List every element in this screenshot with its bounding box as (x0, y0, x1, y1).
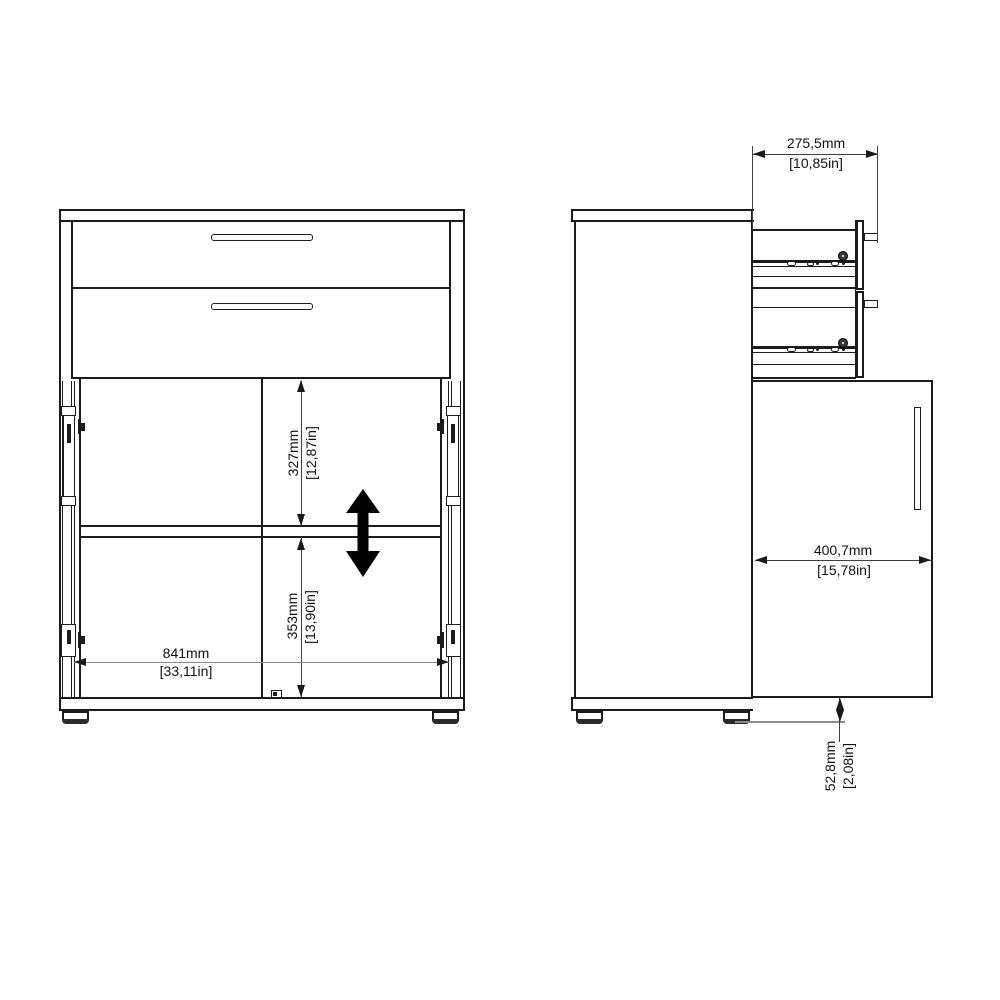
body-back-edge (574, 220, 576, 698)
drawer2-slide-rail-bottom (753, 352, 856, 353)
bottom-panel-bottom-edge (59, 709, 465, 711)
arrowhead-up (297, 380, 305, 392)
drawer2-handle-peg (864, 300, 878, 308)
dim-label-275-mm: 275,5mm (761, 135, 871, 151)
top-panel-bottom-edge (571, 220, 754, 222)
dim-label-400-in: [15,78in] (789, 562, 899, 578)
dim-label-841-in: [33,11in] (131, 663, 241, 679)
right-outer-edge (463, 209, 465, 711)
drawer1-handle-peg (864, 233, 878, 241)
slide-rivet (816, 348, 819, 351)
drawer1-box-bottom (753, 276, 856, 277)
arrowhead-up (836, 698, 844, 710)
door-handle-slot (914, 407, 921, 510)
hinge-arm (67, 424, 71, 443)
hinge-hook (441, 632, 444, 648)
dim-label-841-mm: 841mm (131, 645, 241, 661)
slide-roller (807, 262, 814, 266)
hinge-arm (67, 630, 71, 644)
drawer2-box-bottom (753, 364, 856, 365)
shelf-top-edge (80, 525, 441, 527)
slide-screw (838, 251, 848, 261)
slide-roller (787, 261, 796, 266)
drawer-divider-line (72, 287, 450, 289)
dim-label-327-in: [12,87in] (303, 398, 319, 508)
drawer1-slide-rail-bottom (753, 266, 856, 267)
dim-label-353-in: [13,90in] (302, 562, 318, 672)
arrowhead-left (74, 658, 86, 666)
side-back-foot (576, 711, 603, 724)
slide-roller (807, 348, 814, 352)
dim-label-52-mm: 52,8mm (822, 711, 838, 821)
hinge-hook-nub (81, 636, 85, 644)
hinge-arm (451, 424, 455, 443)
bottom-panel-top-edge (571, 697, 753, 699)
dim-label-275-in: [10,85in] (761, 155, 871, 171)
slide-rivet (816, 262, 819, 265)
top-panel-bottom-edge (59, 220, 465, 222)
drawer-divider-line (753, 287, 856, 289)
slide-rivet (842, 262, 845, 265)
arrowhead-up (297, 538, 305, 550)
center-divider (261, 378, 263, 698)
arrowhead-down (297, 685, 305, 697)
dim-label-400-mm: 400,7mm (788, 542, 898, 558)
adjustable-shelf-arrow-icon (344, 487, 382, 579)
top-panel-left-edge (571, 209, 573, 222)
extension-line (877, 146, 878, 243)
front-left-foot (62, 711, 89, 724)
drawer-area-bottom (753, 377, 856, 379)
dimension-line-327 (301, 381, 302, 526)
dimension-line-400 (755, 560, 931, 561)
bottom-panel-left-edge (571, 697, 573, 711)
slide-rivet (842, 348, 845, 351)
door-catch-pin (273, 692, 277, 696)
arrowhead-right (919, 556, 931, 564)
slide-roller (831, 347, 839, 352)
top-panel-top-edge (59, 209, 465, 211)
drawer1-front-panel (856, 220, 864, 290)
hinge-hook-nub (437, 423, 441, 431)
drawer2-handle-slot (211, 303, 313, 310)
arrowhead-right (437, 658, 449, 666)
drawer1-handle-slot (211, 234, 313, 241)
drawer2-front-panel (856, 291, 864, 378)
hinge-cap (446, 496, 461, 506)
slide-roller (831, 261, 839, 266)
front-right-foot (432, 711, 459, 724)
arrowhead-left (755, 556, 767, 564)
hinge-hook-nub (81, 423, 85, 431)
extension-line (752, 146, 753, 230)
drawer1-box-top (753, 229, 856, 231)
hinge-hook (441, 419, 444, 434)
arrowhead-down (297, 514, 305, 526)
dim-label-327-mm: 327mm (285, 398, 301, 508)
door-panel (751, 380, 933, 698)
shelf-bottom-edge (80, 536, 441, 538)
hinge-cap (61, 496, 76, 506)
hinge-hook-nub (437, 636, 441, 644)
slide-screw (838, 338, 848, 348)
slide-roller (787, 347, 796, 352)
drawer-area-left-inner-edge (71, 220, 73, 379)
hinge-arm (451, 630, 455, 644)
dim-label-52-in: [2,08in] (840, 711, 856, 821)
top-panel-top-edge (571, 209, 754, 211)
technical-drawing-canvas: 327mm [12,87in] 353mm [13,90in] 841mm [3… (0, 0, 1000, 1000)
dim-label-353-mm: 353mm (284, 561, 300, 671)
drawer2-box-top (753, 307, 856, 308)
drawer-area-right-inner-edge (449, 220, 451, 379)
